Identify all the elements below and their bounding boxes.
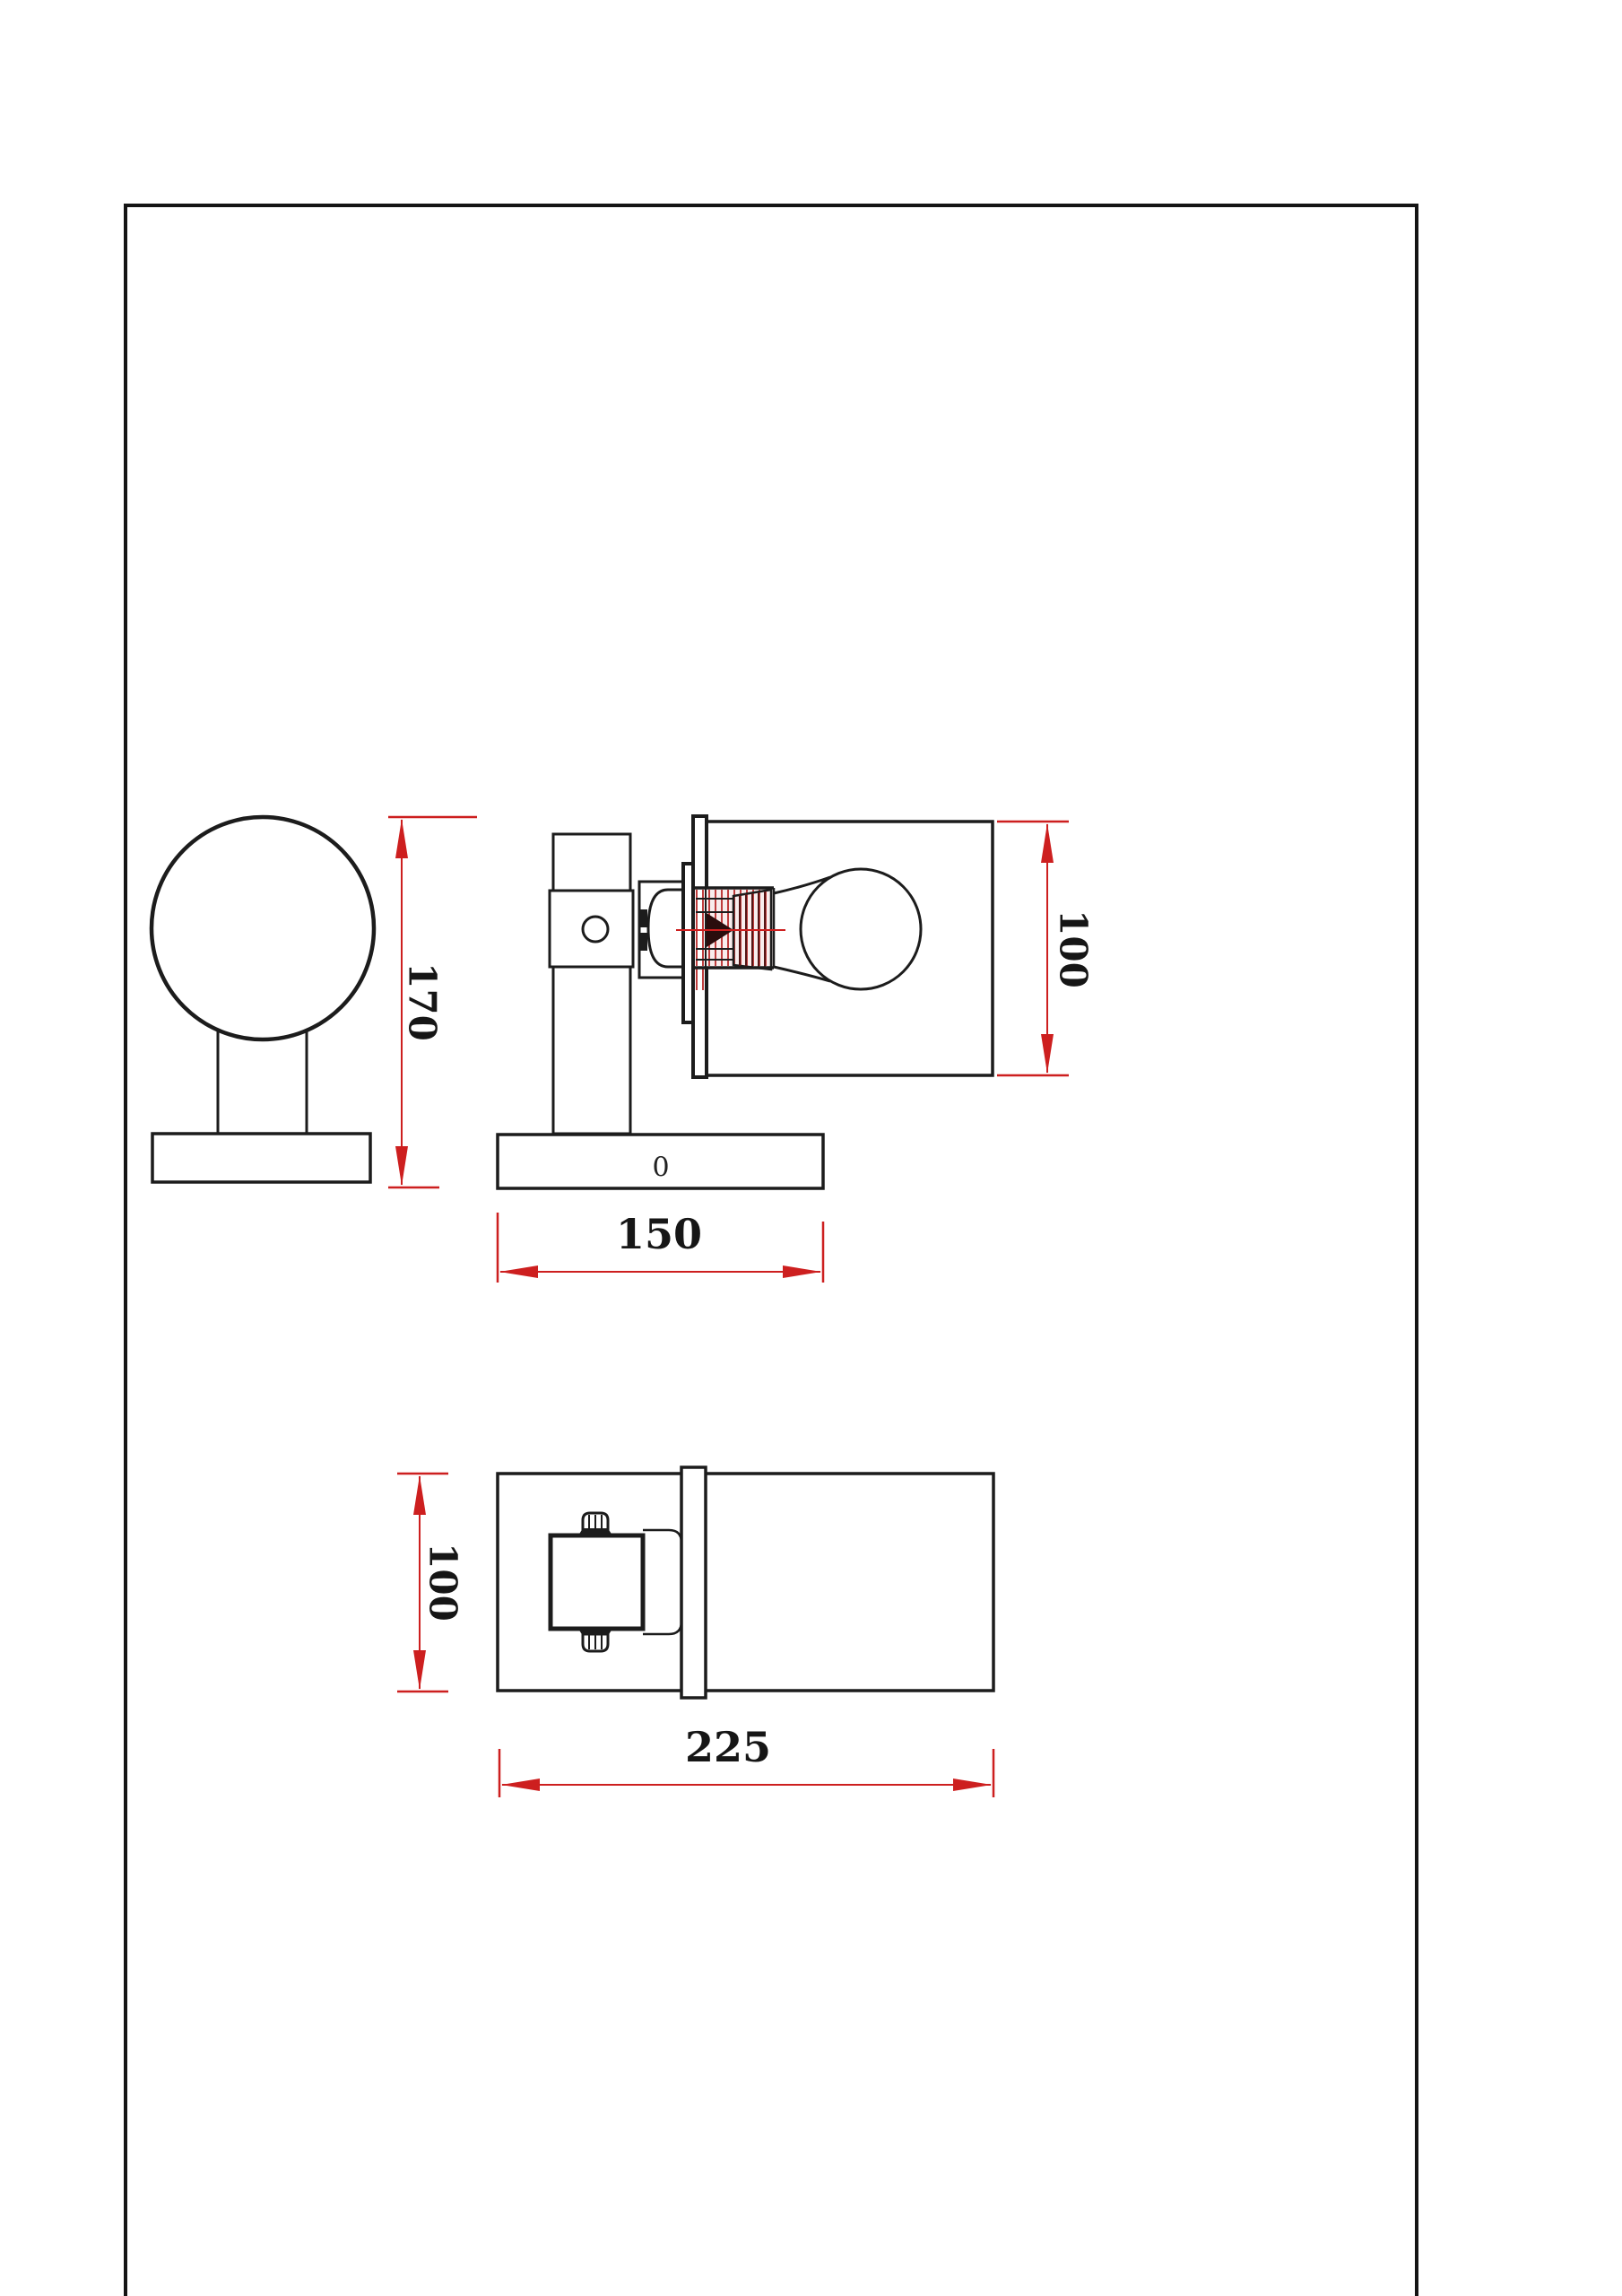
adjustment-knob-top: [578, 1513, 612, 1535]
dim-label-100-body: 100: [421, 1543, 464, 1622]
dim-label-225: 225: [685, 1723, 771, 1771]
dim-label-100-shade: 100: [1051, 909, 1095, 988]
side-view-stem: [218, 1030, 307, 1134]
side-view-globe: [152, 817, 374, 1039]
technical-drawing-canvas: 0 17: [0, 0, 1622, 2296]
dim-label-170: 170: [400, 962, 444, 1041]
mounting-plate-outer: [693, 816, 707, 1077]
drawing-sheet: 0 17: [0, 0, 1622, 2296]
side-view-base: [152, 1134, 370, 1182]
dim-label-150: 150: [616, 1210, 702, 1258]
top-view: [498, 1467, 993, 1698]
top-view-flange: [643, 1530, 681, 1634]
top-view-bracket: [551, 1535, 643, 1629]
screw-hole: [583, 917, 608, 942]
base-hole-marking: 0: [652, 1152, 669, 1184]
adjustment-knob-bottom: [578, 1629, 612, 1651]
holder-cup: [648, 890, 684, 967]
front-view-post: [553, 834, 630, 1134]
holder-contact-pad-bottom: [638, 933, 647, 951]
knob-collar-top: [578, 1528, 612, 1535]
top-view-mounting-plate: [681, 1467, 706, 1698]
holder-contact-pad-top: [638, 909, 647, 927]
